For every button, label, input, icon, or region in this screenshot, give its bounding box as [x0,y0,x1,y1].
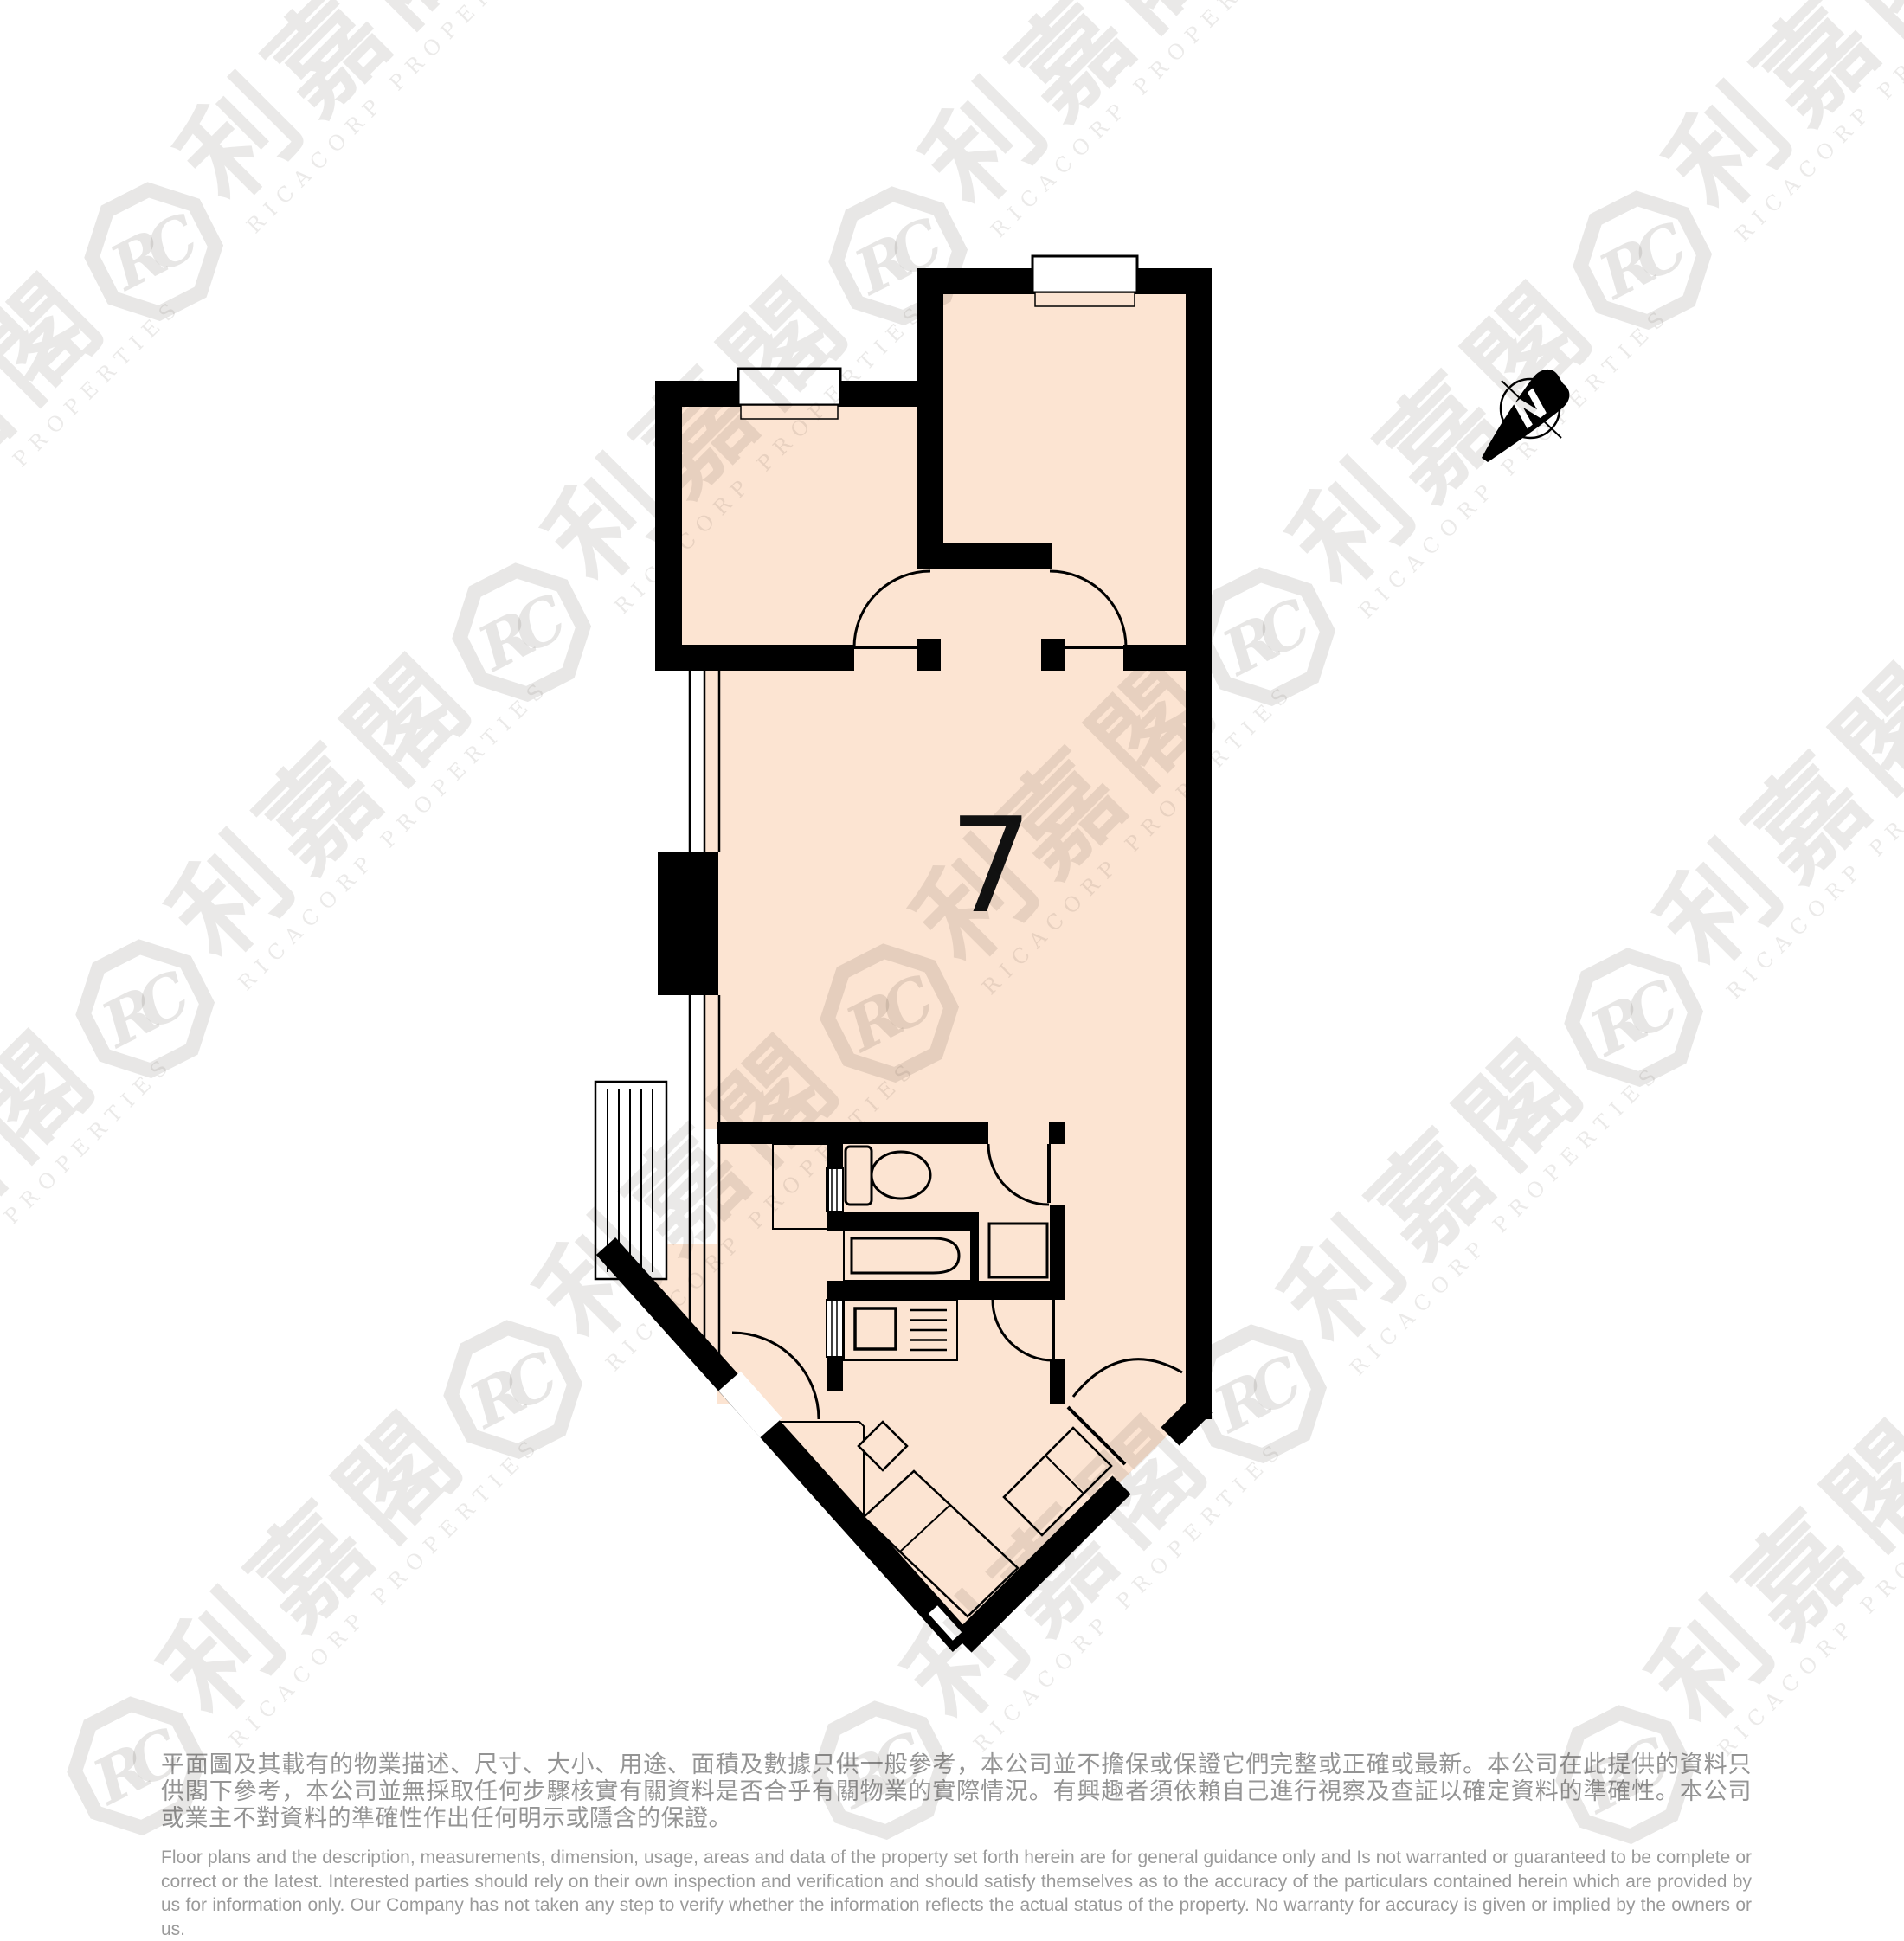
bedroom-1-left-wall [655,381,682,671]
right-exterior-wall [1186,268,1212,1419]
left-pillar [658,852,718,995]
bedroom-2-window [1032,256,1137,306]
floor-plan-page: { "unit": { "number": "7" }, "compass": … [0,0,1904,1904]
bedroom-divider-wall [917,268,943,569]
disclaimer-chinese: 平面圖及其載有的物業描述、尺寸、大小、用途、面積及數據只供一般參考，本公司並不擔… [161,1751,1752,1832]
bedroom-1-bottom-wall [655,645,854,671]
bedroom-2-bottom-wall [1123,645,1212,671]
living-room-floor [704,645,1186,1129]
doorway-strip-floor [852,567,1128,645]
bedroom-1-window [738,369,840,419]
doorway-header-wall [930,543,1052,569]
bathroom-kitchen-wall [827,1281,1065,1300]
kitchen-louvre-window [827,1300,843,1357]
bathroom-mid-wall [827,1212,974,1231]
disclaimer-english: Floor plans and the description, measure… [161,1846,1752,1941]
living-bottom-wall [717,1122,988,1144]
floor-plan: 7 N [0,0,1904,1904]
north-compass-icon: N [1482,370,1569,462]
disclaimer-block: 平面圖及其載有的物業描述、尺寸、大小、用途、面積及數據只供一般參考，本公司並不擔… [161,1751,1752,1941]
unit-number: 7 [949,789,1033,942]
